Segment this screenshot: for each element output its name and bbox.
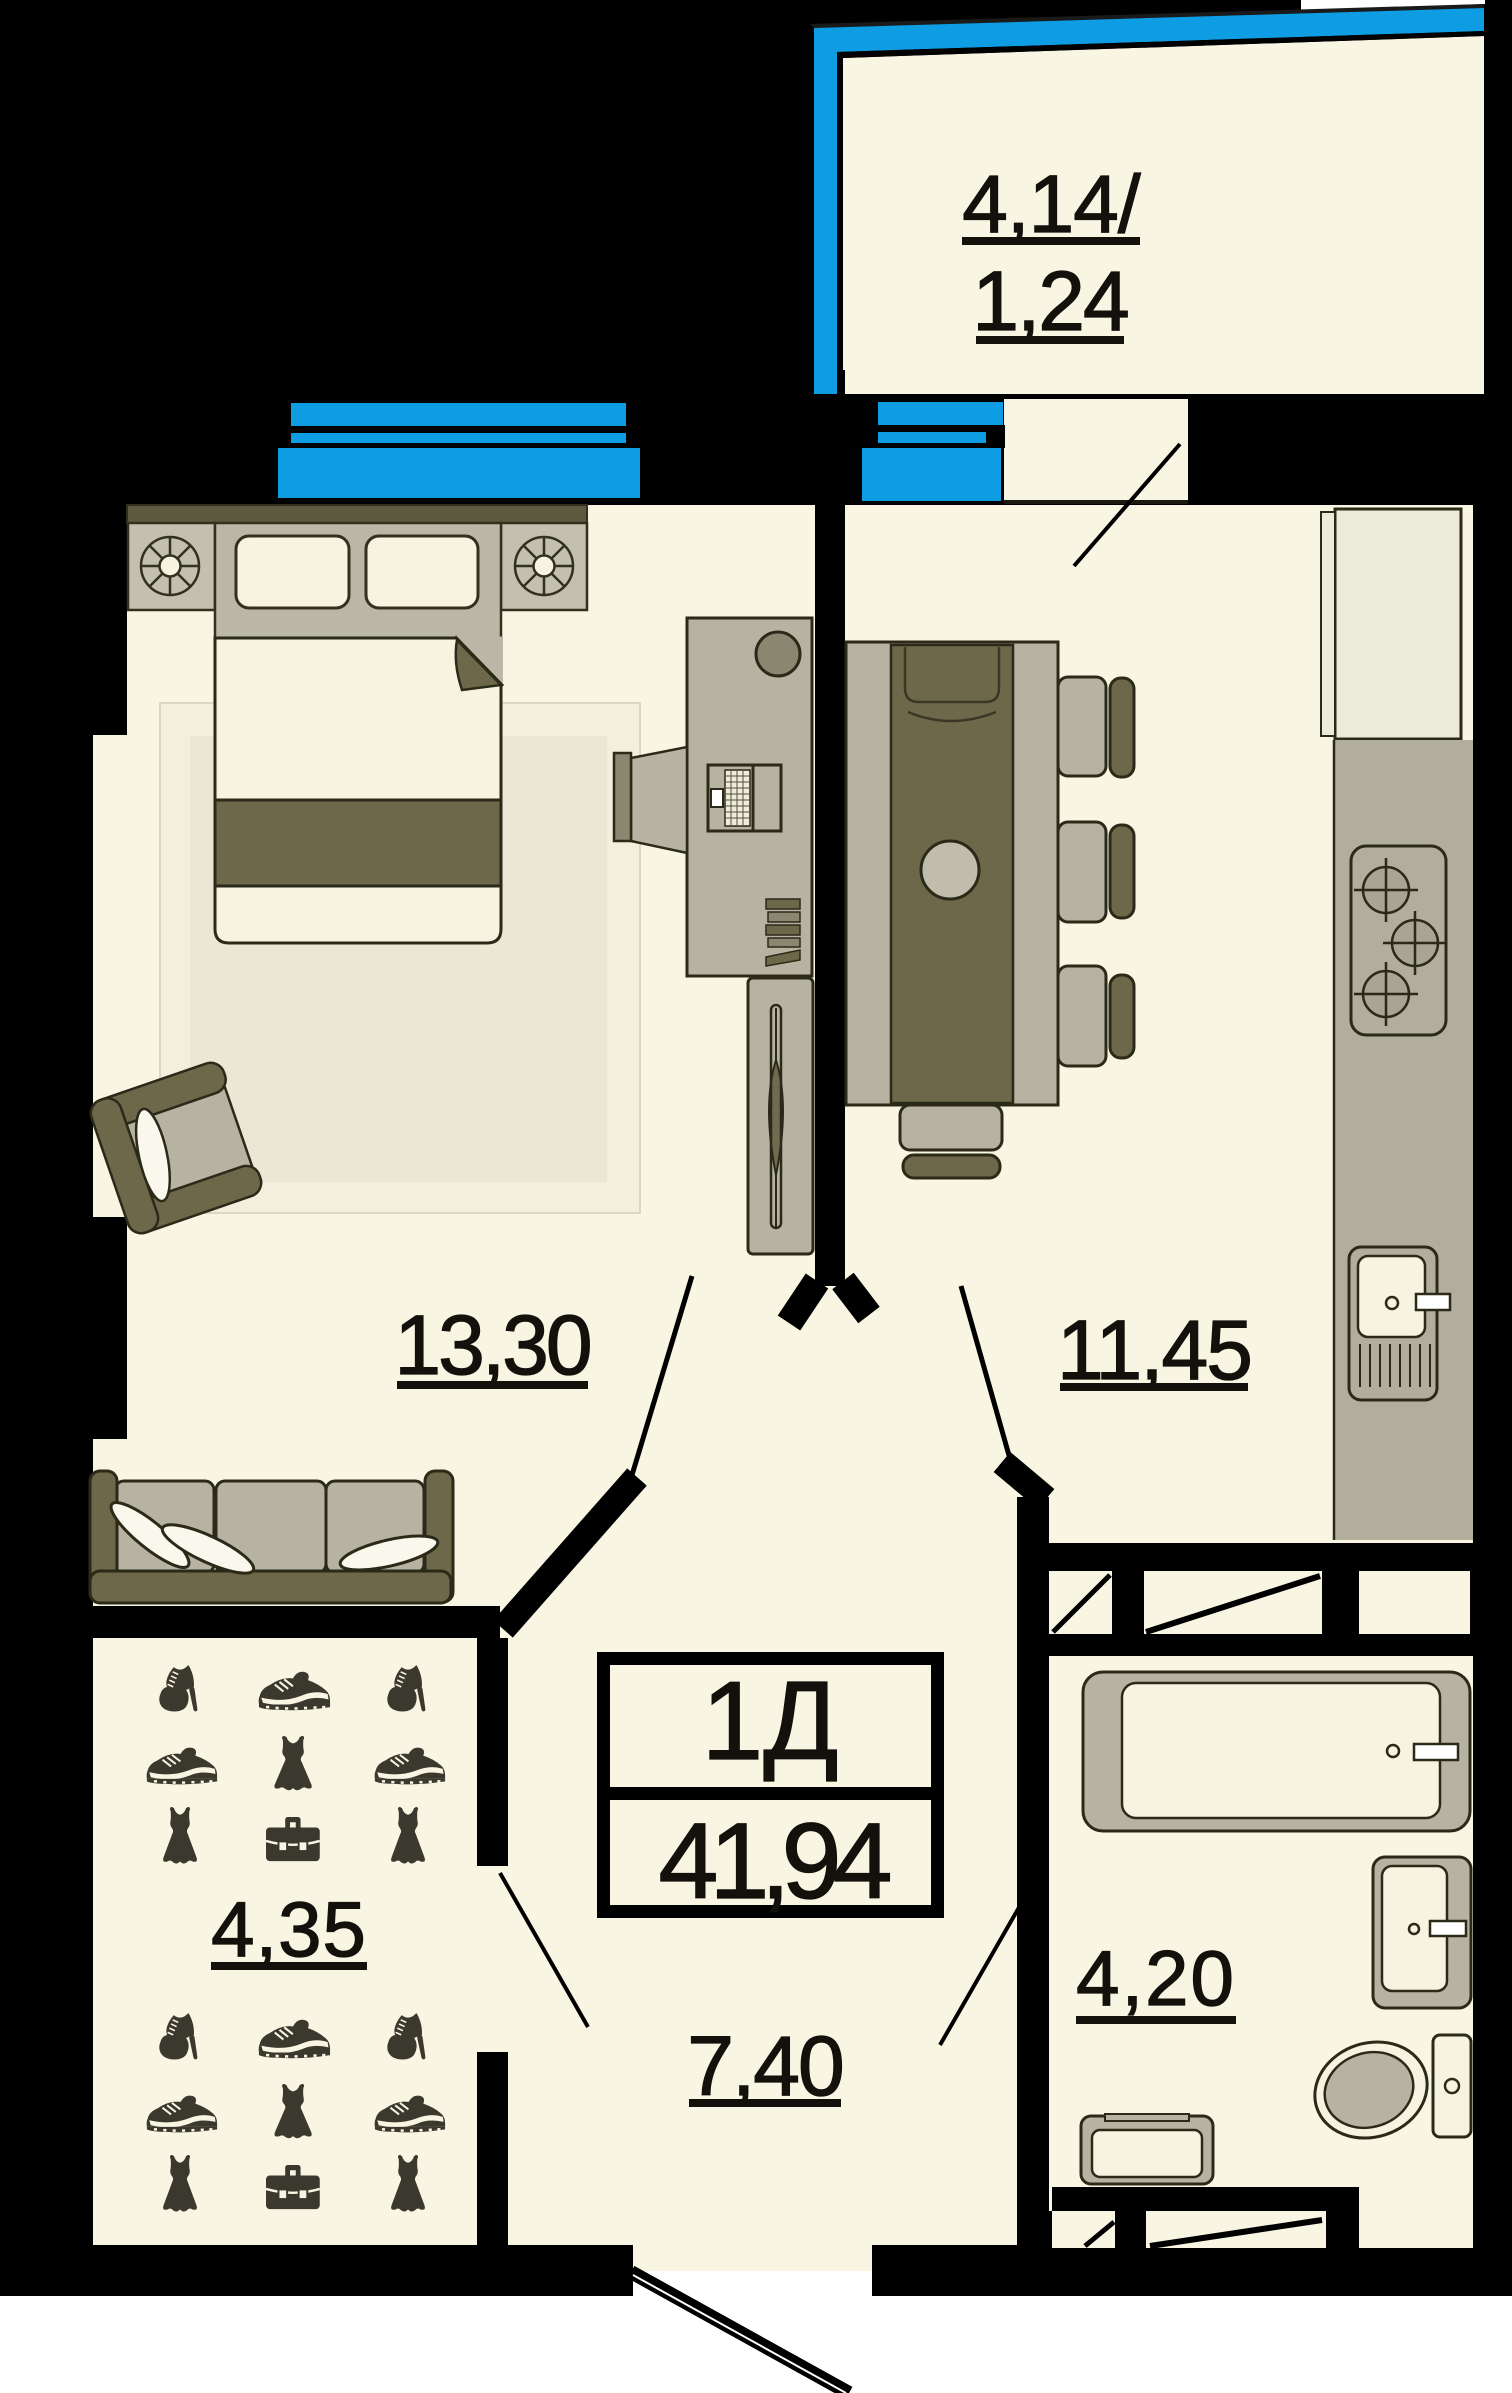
svg-text:1,24: 1,24 bbox=[972, 254, 1128, 348]
svg-text:7,40: 7,40 bbox=[687, 2019, 843, 2113]
svg-text:41,94: 41,94 bbox=[658, 1800, 889, 1921]
svg-text:4,35: 4,35 bbox=[211, 1885, 367, 1973]
svg-text:1Д: 1Д bbox=[702, 1659, 839, 1783]
svg-text:13,30: 13,30 bbox=[394, 1298, 589, 1392]
svg-text:4,14/: 4,14/ bbox=[962, 159, 1141, 250]
svg-text:11,45: 11,45 bbox=[1057, 1303, 1251, 1397]
svg-text:4,20: 4,20 bbox=[1076, 1934, 1236, 2022]
